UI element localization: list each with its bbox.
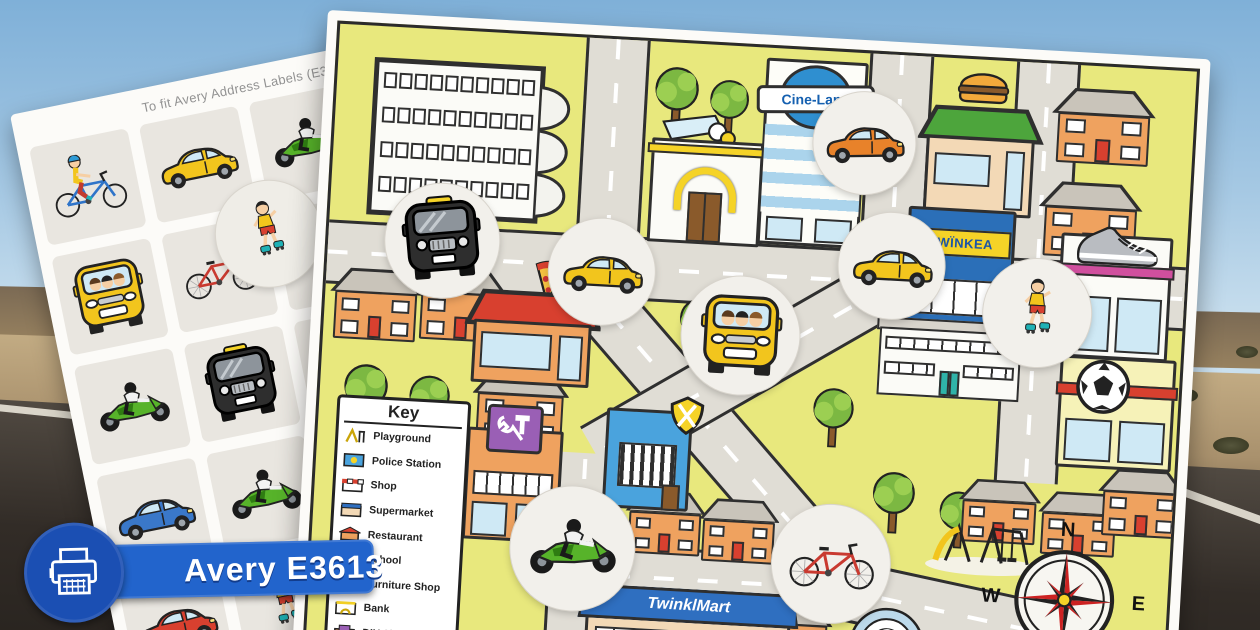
boy-rollerskating-sticker-icon [1013,275,1062,350]
key-entry-label: Playground [373,430,431,445]
police-station-icon [341,451,366,469]
compass-rose: N E W S [976,513,1152,630]
desert-bush [1236,346,1258,358]
twinklmart-sign-label: TwinklMart [647,595,731,618]
shop-icon [340,475,365,493]
sticker-cell-green-motorcycle[interactable] [74,347,192,465]
avery-badge: Avery E3613 [23,514,377,625]
key-entry-label: Shop [370,480,397,493]
black-taxi-sticker-icon [193,335,292,433]
burger-restaurant [923,91,1038,219]
football-icon [1074,357,1133,416]
yellow-car-sticker-icon [847,236,937,296]
yellow-family-car-sticker-icon [689,285,791,385]
town-map-sheet: Cine-Land TWÏNKEA [286,10,1210,630]
printer-icon [45,544,102,601]
green-motorcycle-sticker-icon [86,370,180,443]
compass-north-label: N [1060,519,1076,543]
key-entry-label: Police Station [372,455,442,471]
sports-shop [1055,354,1177,472]
compass-west-label: W [981,584,1001,608]
tools-icon [494,411,534,449]
sticker-cell-yellow-family-car[interactable] [51,238,169,356]
map-sticker-black-taxi[interactable] [382,181,502,301]
burger-icon [954,68,1014,109]
bank-building [647,137,765,247]
promo-image: To fit Avery Address Labels (E3613) [0,0,1260,630]
boy-rollerskating-sticker-icon [240,195,297,273]
road [576,32,651,241]
house [1056,88,1152,167]
badge-circle [23,522,125,624]
house [701,499,776,565]
police-badge-icon [668,395,706,437]
yellow-car-sticker-icon [151,130,244,200]
diy-shop-icon [332,623,357,630]
town-map: Cine-Land TWÏNKEA [297,21,1200,630]
playground-icon [343,426,368,444]
desert-bush [1213,437,1249,454]
sticker-cell-child-on-bicycle[interactable] [29,128,147,246]
yellow-car-sticker-icon [557,242,647,302]
green-motorcycle-sticker-icon [521,514,624,583]
sticker-cell-black-taxi[interactable] [183,325,301,443]
key-entry-label: Supermarket [369,504,434,520]
tree [805,384,861,452]
map-sticker-yellow-family-car[interactable] [678,273,802,397]
sneaker-icon [1072,221,1162,272]
yellow-family-car-sticker-icon [61,248,160,346]
badge-label: Avery E3613 [183,539,412,598]
child-on-bicycle-sticker-icon [40,145,136,228]
black-taxi-sticker-icon [392,191,493,291]
road-bicycle-sticker-icon [781,529,881,599]
orange-car-sticker-icon [822,116,907,171]
police-station [602,407,693,512]
compass-east-label: E [1131,593,1146,617]
